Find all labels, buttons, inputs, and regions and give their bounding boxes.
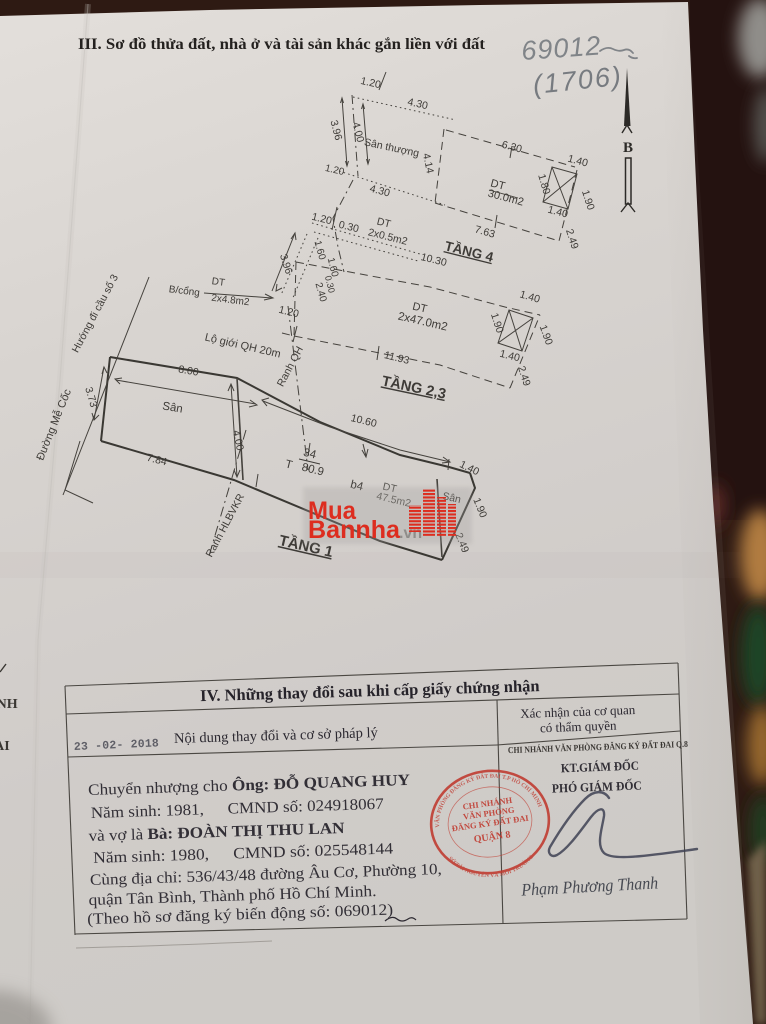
- svg-text:MINH: MINH: [0, 697, 18, 712]
- svg-text:Bannha: Bannha: [308, 516, 401, 544]
- svg-text:B: B: [623, 140, 633, 156]
- svg-text:DT: DT: [211, 276, 226, 289]
- svg-text:KT.GIÁM ĐỐC: KT.GIÁM ĐỐC: [561, 758, 639, 776]
- svg-text:III. Sơ đồ thửa đất, nhà ở và: III. Sơ đồ thửa đất, nhà ở và tài sản kh…: [78, 36, 486, 53]
- svg-text:ĐẠI: ĐẠI: [0, 739, 10, 754]
- svg-text:69012: 69012: [520, 30, 602, 66]
- svg-text:có thẩm quyền: có thẩm quyền: [540, 718, 618, 736]
